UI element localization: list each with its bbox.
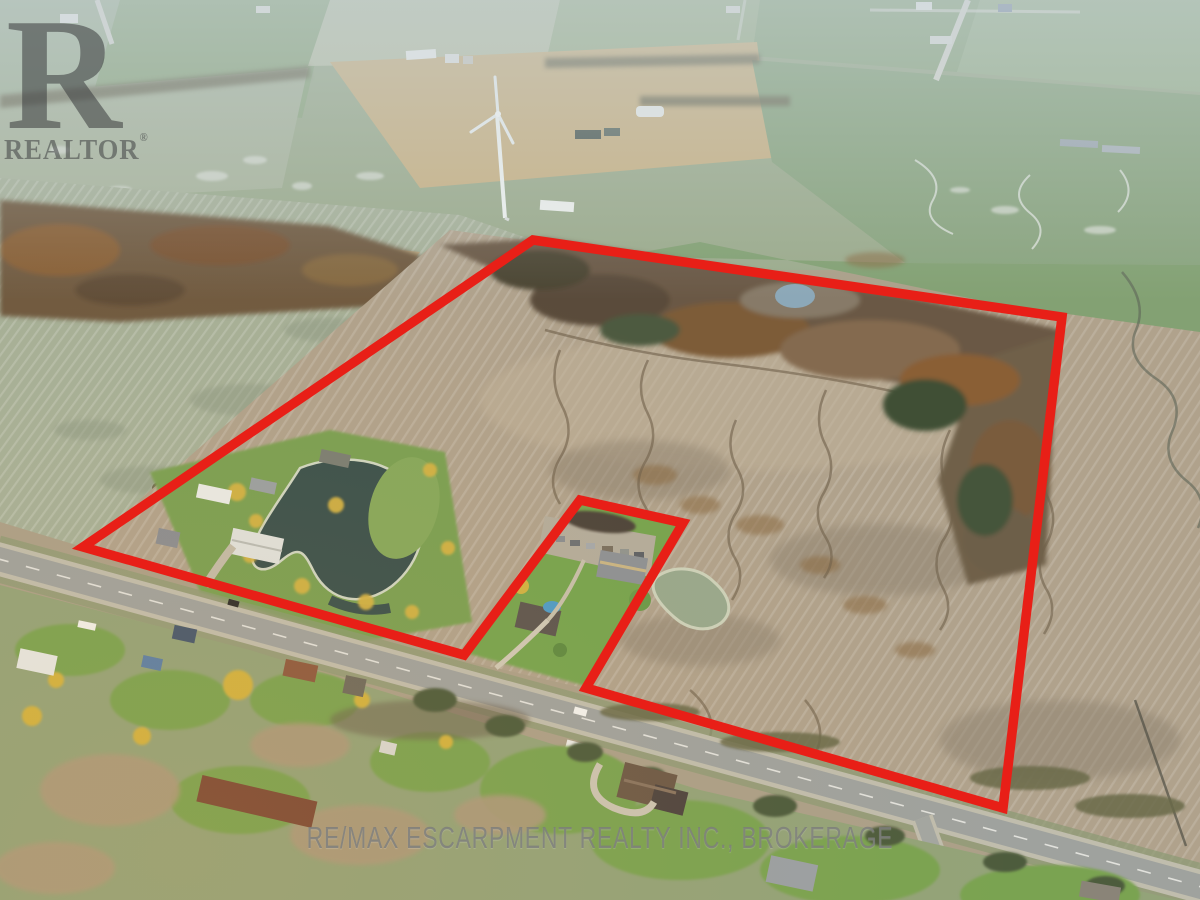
warm-light-overlay [0, 0, 1200, 900]
registered-trademark-symbol: ® [139, 130, 148, 144]
realtor-wordmark: REALTOR® [4, 130, 149, 167]
listing-photo: R REALTOR® RE/MAX ESCARPMENT REALTY INC.… [0, 0, 1200, 900]
aerial-photo [0, 0, 1200, 900]
brokerage-watermark: RE/MAX ESCARPMENT REALTY INC., BROKERAGE [307, 820, 894, 856]
realtor-wordmark-text: REALTOR [4, 134, 139, 166]
